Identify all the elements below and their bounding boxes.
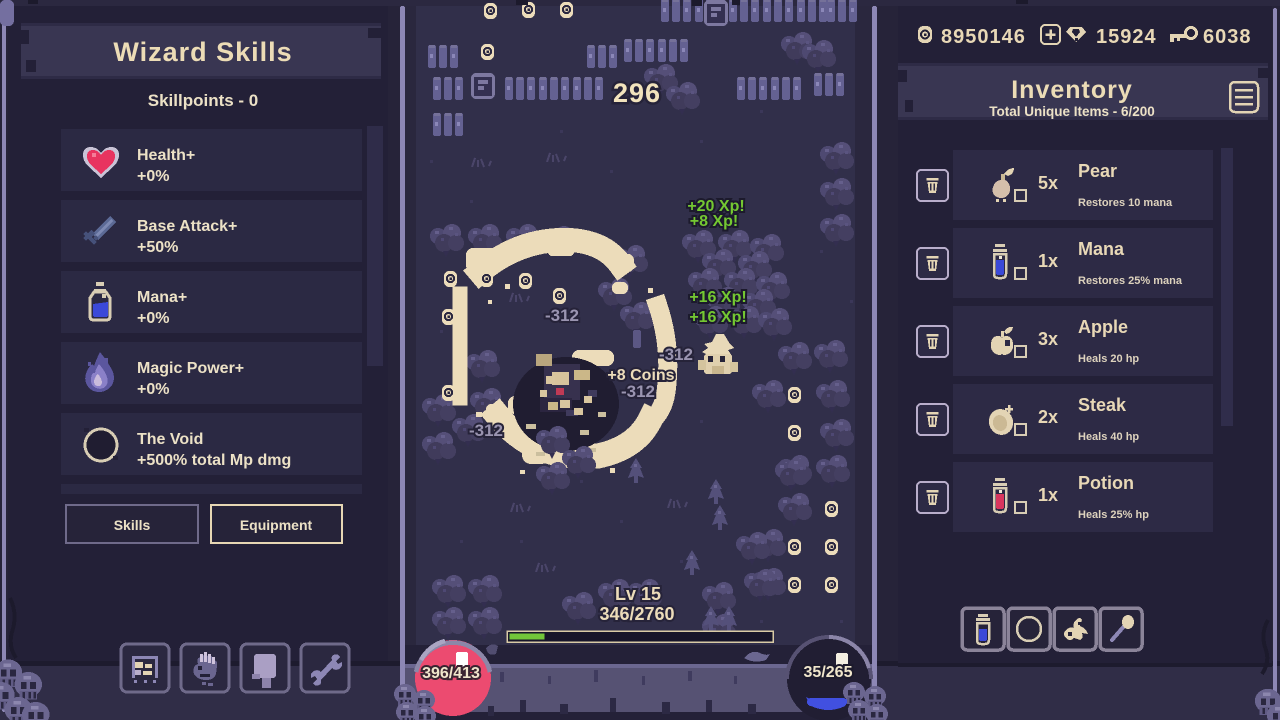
svg-text:Inventory: Inventory — [1011, 76, 1133, 104]
svg-text:-312: -312 — [621, 382, 655, 401]
svg-text:Heals 25% hp: Heals 25% hp — [1078, 509, 1149, 521]
svg-text:Heals 20 hp: Heals 20 hp — [1078, 353, 1139, 365]
svg-text:Base Attack+: Base Attack+ — [137, 218, 237, 235]
svg-text:Total Unique Items - 6/200: Total Unique Items - 6/200 — [989, 104, 1155, 119]
svg-text:+16 Xp!: +16 Xp! — [689, 289, 746, 306]
svg-text:Mana: Mana — [1078, 239, 1125, 259]
svg-text:Heals 40 hp: Heals 40 hp — [1078, 431, 1139, 443]
svg-text:1x: 1x — [1038, 485, 1058, 505]
svg-text:+500% total Mp dmg: +500% total Mp dmg — [137, 452, 291, 469]
svg-text:Mana+: Mana+ — [137, 289, 187, 306]
svg-text:-312: -312 — [545, 306, 579, 325]
svg-text:396/413: 396/413 — [422, 665, 480, 682]
svg-text:Equipment: Equipment — [240, 517, 313, 533]
svg-text:6038: 6038 — [1203, 26, 1252, 48]
svg-text:+0%: +0% — [137, 381, 169, 398]
svg-text:Skillpoints - 0: Skillpoints - 0 — [148, 91, 259, 110]
svg-text:Skills: Skills — [114, 517, 151, 533]
svg-text:Apple: Apple — [1078, 317, 1128, 337]
svg-text:Restores 25% mana: Restores 25% mana — [1078, 275, 1183, 287]
svg-text:15924: 15924 — [1096, 26, 1157, 48]
svg-text:+0%: +0% — [137, 310, 169, 327]
svg-text:Potion: Potion — [1078, 473, 1134, 493]
svg-text:5x: 5x — [1038, 173, 1058, 193]
svg-text:1x: 1x — [1038, 251, 1058, 271]
svg-text:Pear: Pear — [1078, 161, 1117, 181]
svg-text:346/2760: 346/2760 — [599, 604, 674, 624]
svg-text:+0%: +0% — [137, 168, 169, 185]
svg-text:3x: 3x — [1038, 329, 1058, 349]
svg-text:35/265: 35/265 — [804, 664, 853, 681]
svg-text:Wizard Skills: Wizard Skills — [113, 37, 292, 67]
svg-text:+8 Xp!: +8 Xp! — [690, 213, 738, 230]
svg-text:296: 296 — [613, 78, 661, 108]
svg-text:Health+: Health+ — [137, 147, 195, 164]
svg-text:The Void: The Void — [137, 431, 203, 448]
svg-text:8950146: 8950146 — [941, 26, 1026, 48]
svg-text:Lv 15: Lv 15 — [615, 584, 661, 604]
svg-text:-312: -312 — [659, 345, 693, 364]
svg-text:Magic Power+: Magic Power+ — [137, 360, 244, 377]
svg-text:2x: 2x — [1038, 407, 1058, 427]
svg-text:-312: -312 — [469, 421, 503, 440]
svg-text:+50%: +50% — [137, 239, 178, 256]
svg-text:Steak: Steak — [1078, 395, 1127, 415]
svg-text:+16 Xp!: +16 Xp! — [689, 309, 746, 326]
svg-text:Restores 10 mana: Restores 10 mana — [1078, 197, 1173, 209]
